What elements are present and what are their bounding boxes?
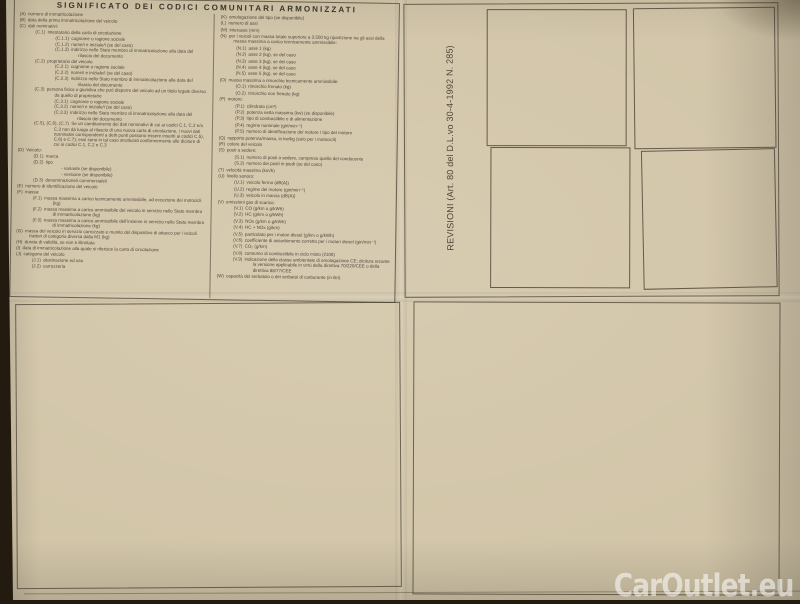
- codes-panel: SIGNIFICATO DEI CODICI COMUNITARI ARMONI…: [9, 0, 400, 303]
- revisioni-panel: REVISIONI (Art. 80 del D.L.vo 30-4-1992 …: [403, 2, 779, 298]
- revisioni-label: REVISIONI (Art. 80 del D.L.vo 30-4-1992 …: [445, 51, 460, 251]
- code-item: (V.9) indicazione della classe ambiental…: [217, 256, 393, 274]
- revision-box-1: [487, 9, 627, 146]
- codes-right-column: (K) omologazione del tipo (se disponibil…: [217, 14, 396, 282]
- watermark: CarOutlet.eu: [614, 568, 794, 604]
- photo-background: SIGNIFICATO DEI CODICI COMUNITARI ARMONI…: [0, 0, 800, 600]
- revision-box-2: [633, 7, 777, 150]
- document-paper: SIGNIFICATO DEI CODICI COMUNITARI ARMONI…: [0, 0, 800, 600]
- codes-left-column: (A) numero di immatricolazione(B) data d…: [16, 11, 208, 271]
- code-item: (W) capacità del serbatoio o dei serbato…: [217, 273, 393, 281]
- revision-box-4: [641, 148, 778, 290]
- blank-field-bottom-right: [412, 301, 780, 595]
- code-item: (C.5), (C.6), (C.7) Se un cambiamento de…: [18, 121, 206, 150]
- column-divider: [209, 12, 214, 298]
- blank-field-bottom-left: [15, 302, 402, 589]
- revision-box-3: [490, 147, 630, 288]
- codes-columns: (A) numero di immatricolazione(B) data d…: [15, 11, 395, 301]
